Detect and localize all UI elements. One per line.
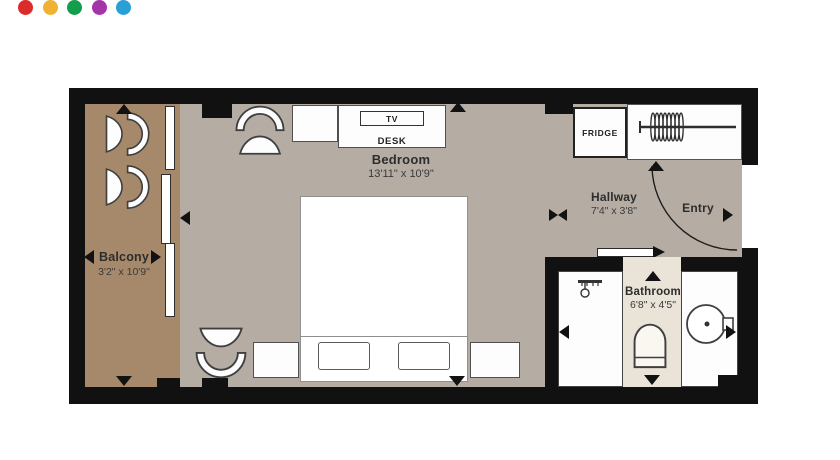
side-table bbox=[292, 105, 338, 142]
hangers-icon bbox=[627, 104, 742, 160]
arrow-up-icon bbox=[648, 161, 664, 171]
shower-head-icon bbox=[577, 278, 603, 302]
arrow-down-icon bbox=[644, 375, 660, 385]
brand-dot bbox=[116, 0, 131, 15]
brand-dot bbox=[18, 0, 33, 15]
bedroom-armchair-icon bbox=[227, 103, 293, 161]
bathroom-block: Bathroom 6'8" x 4'5" bbox=[545, 257, 758, 404]
arrow-left-icon bbox=[84, 250, 94, 264]
arrow-right-icon bbox=[726, 325, 736, 339]
arrow-left-icon bbox=[180, 211, 190, 225]
nightstand bbox=[253, 342, 299, 378]
arrow-up-icon bbox=[450, 102, 466, 112]
entry-door-swing-arc bbox=[645, 160, 745, 260]
arrow-left-icon bbox=[559, 325, 569, 339]
bedroom-label: Bedroom 13'11" x 10'9" bbox=[321, 152, 481, 182]
sliding-door-panel bbox=[165, 106, 175, 170]
pillow bbox=[318, 342, 370, 370]
arrow-down-icon bbox=[449, 376, 465, 386]
tv-label: TV bbox=[386, 114, 398, 124]
toilet-icon bbox=[630, 317, 670, 371]
brand-dot bbox=[43, 0, 58, 15]
desk-label: DESK bbox=[378, 136, 407, 147]
arrow-up-icon bbox=[645, 271, 661, 281]
wall-stub bbox=[545, 104, 573, 114]
brand-dot bbox=[92, 0, 107, 15]
bathroom-name: Bathroom bbox=[603, 285, 703, 299]
arrow-down-icon bbox=[116, 376, 132, 386]
wall-stub bbox=[157, 378, 180, 388]
desk-label-wrap: DESK bbox=[339, 131, 445, 149]
brand-dot bbox=[67, 0, 82, 15]
floorplan-page: Balcony 3'2" x 10'9" TV DESK Bedroom 13'… bbox=[0, 0, 840, 460]
tv: TV bbox=[360, 111, 424, 126]
pillow bbox=[398, 342, 450, 370]
sliding-door-panel bbox=[165, 243, 175, 317]
bathroom-door-leaf bbox=[597, 248, 655, 257]
wall-step bbox=[718, 375, 738, 387]
arrow-right-icon bbox=[151, 250, 161, 264]
bedroom-name: Bedroom bbox=[321, 152, 481, 168]
entry-door-opening bbox=[742, 165, 758, 248]
balcony-dims: 3'2" x 10'9" bbox=[85, 266, 163, 279]
bedroom-armchair-icon bbox=[189, 321, 253, 381]
balcony-armchair-icon bbox=[100, 161, 152, 213]
bedroom-dims: 13'11" x 10'9" bbox=[321, 168, 481, 182]
balcony-armchair-icon bbox=[100, 108, 152, 160]
nightstand bbox=[470, 342, 520, 378]
desk: TV DESK bbox=[338, 105, 446, 148]
sliding-door-panel bbox=[161, 174, 171, 244]
arrow-up-icon bbox=[116, 104, 132, 114]
fridge-label: FRIDGE bbox=[582, 128, 618, 138]
door-meet-icon bbox=[549, 209, 567, 221]
bed-mattress bbox=[300, 196, 468, 337]
fridge: FRIDGE bbox=[573, 107, 627, 158]
